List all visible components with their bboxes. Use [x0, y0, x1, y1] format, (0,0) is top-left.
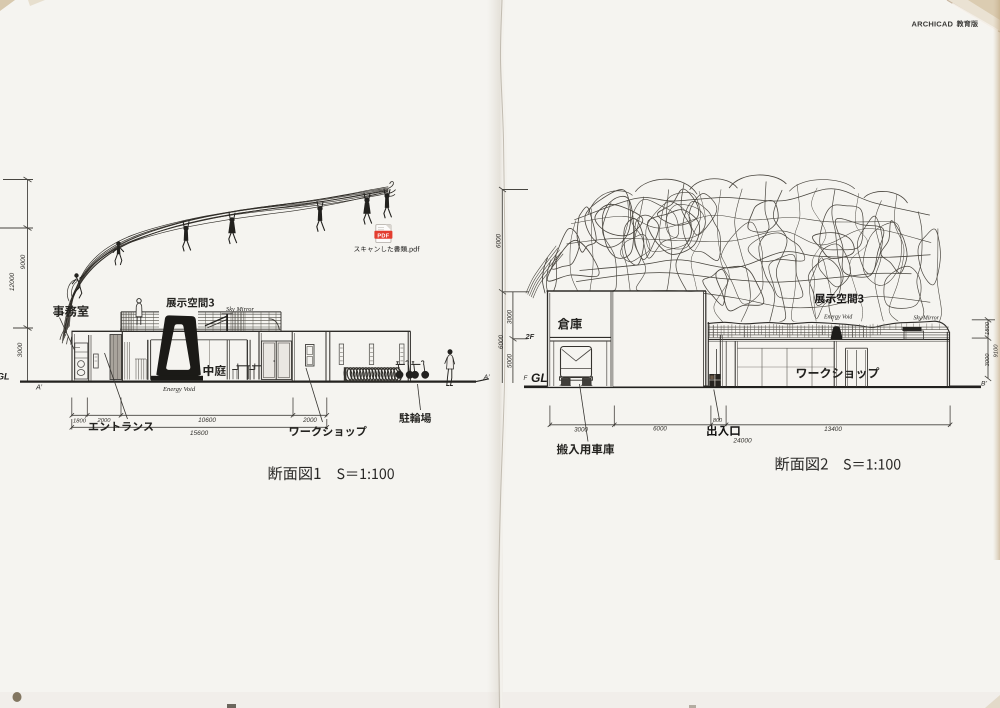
svg-text:9000: 9000	[20, 254, 27, 269]
svg-text:3000: 3000	[507, 309, 514, 324]
svg-text:1800: 1800	[985, 321, 991, 335]
svg-text:ARCHICAD: ARCHICAD	[912, 19, 954, 28]
svg-text:GL: GL	[531, 371, 548, 385]
svg-text:15600: 15600	[190, 430, 209, 437]
svg-text:9100: 9100	[994, 344, 1000, 358]
svg-text:24000: 24000	[732, 438, 752, 445]
svg-text:B’: B’	[981, 381, 988, 388]
svg-text:A’: A’	[35, 383, 43, 392]
svg-text:10600: 10600	[198, 417, 216, 424]
svg-text:6000: 6000	[496, 233, 503, 248]
svg-text:3000: 3000	[985, 353, 991, 367]
svg-text:12000: 12000	[9, 273, 16, 292]
svg-text:3000: 3000	[17, 342, 24, 357]
svg-text:6000: 6000	[498, 334, 505, 349]
svg-text:800: 800	[713, 418, 723, 424]
svg-text:2F: 2F	[525, 332, 535, 341]
svg-text:1800: 1800	[73, 419, 87, 425]
svg-text:5000: 5000	[507, 353, 514, 368]
svg-text:Sky Mirror: Sky Mirror	[914, 316, 940, 322]
svg-text:Energy Void: Energy Void	[162, 386, 196, 393]
svg-text:2000: 2000	[97, 418, 112, 424]
svg-text:13400: 13400	[824, 426, 842, 433]
svg-text:A’: A’	[483, 373, 491, 382]
svg-text:6000: 6000	[653, 426, 667, 433]
svg-text:Energy Void: Energy Void	[823, 315, 852, 321]
svg-text:2000: 2000	[302, 417, 317, 424]
svg-text:GL: GL	[0, 372, 10, 382]
svg-text:Sky Mirror: Sky Mirror	[226, 306, 254, 313]
svg-text:PDF: PDF	[377, 234, 389, 240]
